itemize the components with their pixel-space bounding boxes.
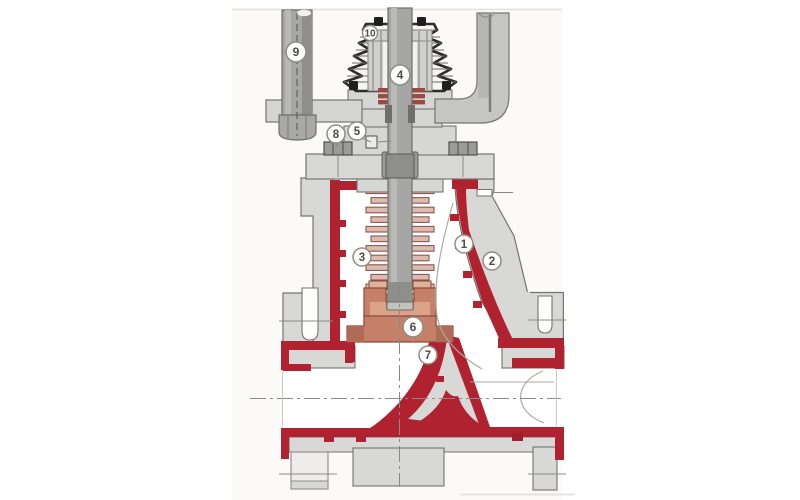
svg-text:9: 9 (293, 45, 300, 59)
svg-text:5: 5 (354, 126, 361, 138)
svg-text:7: 7 (425, 350, 431, 362)
svg-text:8: 8 (333, 129, 340, 141)
svg-text:1: 1 (461, 239, 468, 251)
svg-text:4: 4 (397, 68, 404, 82)
svg-text:6: 6 (410, 320, 417, 334)
svg-text:10: 10 (364, 29, 376, 40)
svg-text:3: 3 (359, 252, 365, 264)
svg-text:2: 2 (489, 256, 495, 268)
